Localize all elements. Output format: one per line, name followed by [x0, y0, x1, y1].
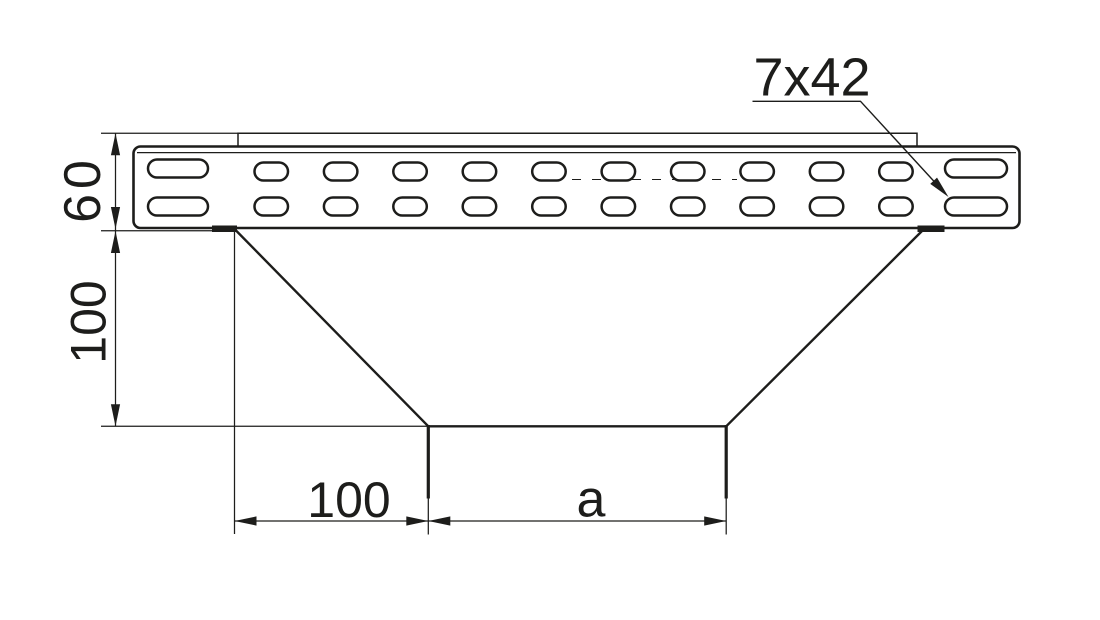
slot-short	[463, 163, 497, 181]
slot-short	[810, 163, 844, 181]
slot-short	[740, 163, 774, 181]
branch-left-slant	[236, 231, 428, 427]
slot-short	[879, 198, 913, 216]
slot-short	[740, 198, 774, 216]
slot-short	[393, 163, 427, 181]
dim-label-rail-height: 60	[54, 155, 112, 223]
slot-short	[602, 198, 636, 216]
slot-long	[945, 160, 1007, 178]
dim-label-branch-height: 100	[61, 280, 117, 363]
slot-short	[463, 198, 497, 216]
cable-tray-branch-side-view: 60 100 100 a 7x42	[0, 0, 1100, 620]
slot-short	[393, 198, 427, 216]
slot-short	[532, 198, 566, 216]
technical-drawing-canvas: 60 100 100 a 7x42	[0, 0, 1100, 620]
slot-short	[532, 163, 566, 181]
cover-plate	[238, 133, 917, 146]
slot-short	[602, 163, 636, 181]
slot-callout-label: 7x42	[753, 48, 870, 108]
slot-short	[255, 198, 289, 216]
branch-right-slant	[726, 231, 922, 427]
slot-short	[324, 163, 358, 181]
slot-short	[324, 198, 358, 216]
slot-short	[671, 163, 705, 181]
slot-short	[810, 198, 844, 216]
slot-short	[671, 198, 705, 216]
slot-long	[148, 198, 208, 216]
slot-short	[255, 163, 289, 181]
slot-short	[879, 163, 913, 181]
dim-label-bottom-left: 100	[307, 472, 390, 528]
slot-long	[148, 160, 208, 178]
branch-outline	[236, 231, 923, 499]
dim-label-bottom-right: a	[577, 471, 606, 529]
slot-long	[945, 198, 1007, 216]
